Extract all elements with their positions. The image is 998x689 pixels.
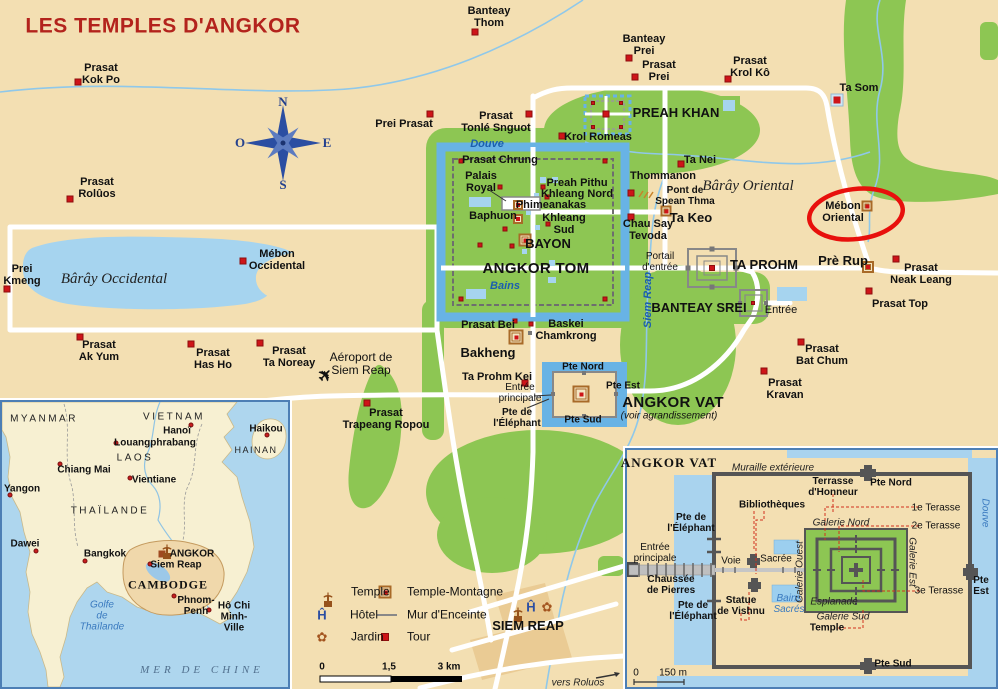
red-marker bbox=[761, 368, 768, 375]
red-marker bbox=[628, 190, 635, 197]
temple-montagne-icon bbox=[513, 200, 523, 210]
red-marker bbox=[628, 214, 635, 221]
temple-montagne-icon bbox=[661, 206, 672, 217]
temple-montagne-icon bbox=[862, 201, 873, 212]
graysq-marker bbox=[614, 392, 618, 396]
red-marker bbox=[240, 258, 247, 265]
angkor-temples-map: LES TEMPLES D'ANGKOR 0 1,5 3 km ✈ Prasat… bbox=[0, 0, 998, 689]
red-marker bbox=[188, 341, 195, 348]
city-dot bbox=[114, 441, 119, 446]
city-dot bbox=[128, 476, 133, 481]
red-marker bbox=[725, 76, 732, 83]
temple-icon bbox=[322, 592, 334, 608]
legend-jardin-icon: ✿ bbox=[317, 631, 328, 644]
temple-icon bbox=[161, 544, 173, 560]
red-marker bbox=[75, 79, 82, 86]
temple-montagne-icon bbox=[519, 234, 532, 247]
city-dot bbox=[172, 594, 177, 599]
red-marker bbox=[472, 29, 479, 36]
temple-montagne-icon bbox=[513, 214, 523, 224]
graysq-marker bbox=[764, 301, 768, 305]
graysq-marker bbox=[738, 301, 742, 305]
red-marker bbox=[545, 195, 550, 200]
angkor-vat-graphics bbox=[627, 450, 996, 687]
graysq-marker bbox=[686, 266, 691, 271]
red-marker bbox=[619, 125, 623, 129]
red-marker bbox=[427, 111, 434, 118]
red-marker bbox=[619, 101, 623, 105]
red-marker bbox=[591, 125, 595, 129]
legend-tm-icon bbox=[379, 586, 392, 599]
red-marker bbox=[498, 185, 503, 190]
temple-montagne-icon bbox=[573, 386, 590, 403]
red-marker bbox=[678, 161, 685, 168]
legend-tour-icon bbox=[381, 633, 389, 641]
red-marker bbox=[529, 322, 534, 327]
jardin-icon: ✿ bbox=[542, 601, 553, 614]
red-marker bbox=[513, 319, 518, 324]
red-marker bbox=[798, 339, 805, 346]
red-marker bbox=[478, 243, 483, 248]
red-marker bbox=[559, 133, 566, 140]
graysq-marker bbox=[551, 392, 555, 396]
red-marker bbox=[546, 222, 551, 227]
graysq-marker bbox=[582, 414, 586, 418]
red-marker bbox=[709, 265, 715, 271]
red-marker bbox=[866, 288, 873, 295]
city-dot bbox=[207, 608, 212, 613]
red-marker bbox=[4, 286, 11, 293]
red-marker bbox=[603, 159, 608, 164]
compass-rose bbox=[245, 105, 321, 181]
highlight-ellipse-mebon-oriental bbox=[806, 183, 905, 244]
graysq-marker bbox=[528, 331, 532, 335]
inset-angkor-vat: ANGKOR VAT 0 150 m Muraille extérieureTe… bbox=[625, 448, 998, 689]
red-marker bbox=[459, 159, 464, 164]
city-dot bbox=[8, 493, 13, 498]
hotel-icon: Ĥ bbox=[526, 601, 535, 614]
red-marker bbox=[632, 74, 639, 81]
temple-montagne-icon bbox=[509, 330, 524, 345]
city-dot bbox=[58, 462, 63, 467]
city-dot bbox=[83, 559, 88, 564]
city-dot bbox=[34, 549, 39, 554]
red-marker bbox=[503, 227, 508, 232]
red-marker bbox=[510, 244, 515, 249]
legend-hotel-icon: Ĥ bbox=[317, 609, 326, 622]
region-map-graphics bbox=[2, 402, 288, 687]
graysq-marker bbox=[710, 285, 715, 290]
red-marker bbox=[751, 301, 755, 305]
red-marker bbox=[257, 340, 264, 347]
city-dot bbox=[265, 433, 270, 438]
red-marker bbox=[526, 111, 533, 118]
red-marker bbox=[591, 101, 595, 105]
red-marker bbox=[603, 297, 608, 302]
temple-montagne-icon bbox=[862, 261, 874, 273]
graysq-marker bbox=[710, 247, 715, 252]
red-marker bbox=[626, 55, 633, 62]
city-dot bbox=[189, 423, 194, 428]
graysq-marker bbox=[582, 371, 586, 375]
red-marker bbox=[459, 297, 464, 302]
inset-region-map: MYANMARVIETNAMHanoïHaikouHAINANLouangphr… bbox=[0, 400, 290, 689]
temple-icon bbox=[512, 607, 524, 623]
red-marker bbox=[77, 334, 84, 341]
red-marker bbox=[541, 185, 546, 190]
redring-marker bbox=[834, 97, 841, 104]
red-marker bbox=[522, 380, 529, 387]
red-marker bbox=[603, 111, 610, 118]
city-dot bbox=[148, 562, 153, 567]
red-marker bbox=[364, 400, 371, 407]
red-marker bbox=[67, 196, 74, 203]
red-marker bbox=[893, 256, 900, 263]
graysq-marker bbox=[734, 266, 739, 271]
